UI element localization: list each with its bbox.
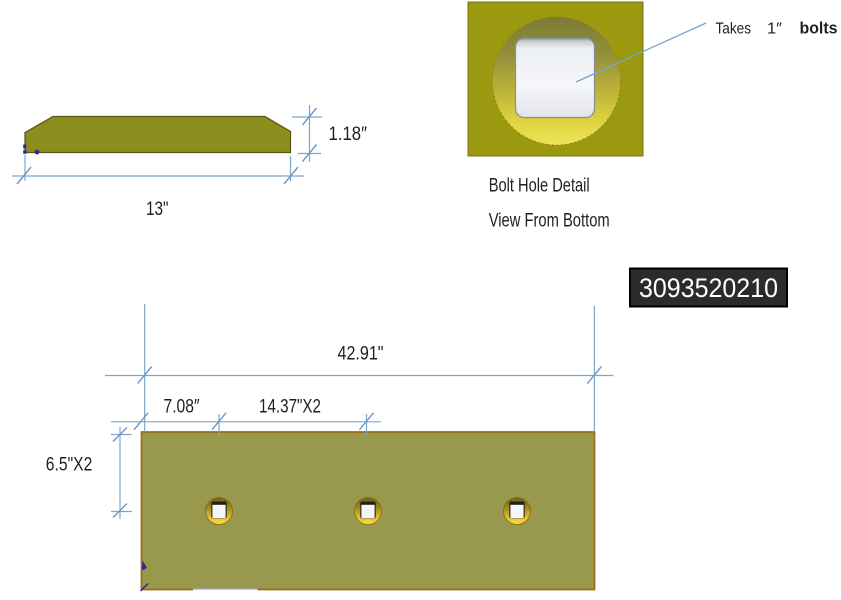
svg-text:Bolt Hole Detail: Bolt Hole Detail [489,176,590,197]
svg-text:3093520210: 3093520210 [639,273,778,303]
svg-text:14.37"X2: 14.37"X2 [259,397,321,418]
svg-text:1″: 1″ [767,21,782,38]
svg-text:42.91": 42.91" [338,343,384,364]
svg-text:13": 13" [146,198,169,220]
svg-text:bolts: bolts [800,19,838,38]
svg-text:6.5"X2: 6.5"X2 [46,455,93,476]
svg-text:View From Bottom: View From Bottom [489,211,610,232]
svg-text:1.18″: 1.18″ [329,124,368,145]
svg-text:7.08″: 7.08″ [164,397,200,418]
svg-text:Takes: Takes [716,21,752,38]
